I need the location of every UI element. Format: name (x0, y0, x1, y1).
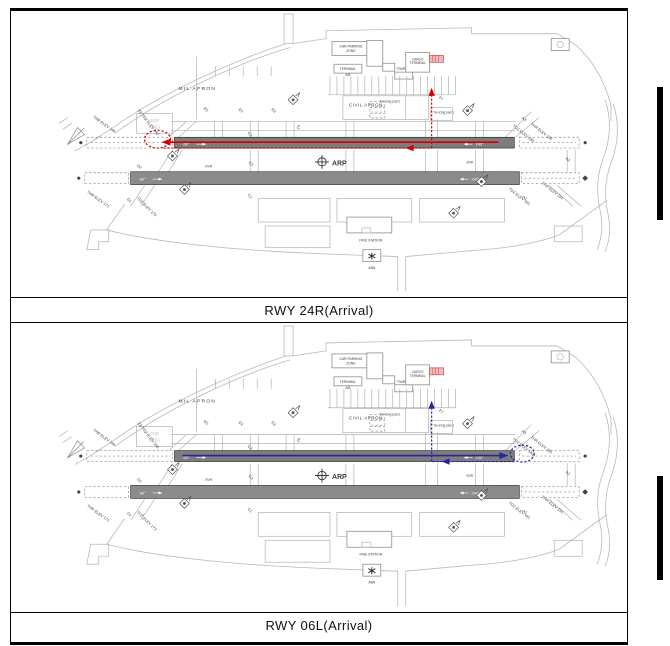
arrival-route-24r (145, 88, 499, 151)
arp-label: ARP (332, 160, 347, 167)
svg-text:ZONE: ZONE (346, 361, 356, 365)
label-deicing-pad-2: De-icing pad 2 (380, 413, 401, 417)
label-c2: C2 (248, 474, 255, 481)
route-arrow-up-icon (428, 401, 434, 409)
label-c2: C2 (248, 161, 254, 167)
label-deicing-pad-1: De-icing pad 1 (434, 111, 455, 115)
label-fire-station: FIRE STATION (359, 553, 382, 557)
label-terminal-ab: A/B (345, 73, 350, 77)
label-tdz-elev-173: TDZ ELEV 173 (136, 510, 158, 532)
label-e3: E3 (270, 108, 276, 114)
north-arrow-icon (64, 125, 87, 148)
label-e4: E4 (238, 420, 245, 427)
label-thr-elev-146: THR ELEV 146 (92, 427, 116, 447)
thumb-tab-top (657, 87, 663, 220)
fire-station-building (347, 217, 392, 233)
label-c1: C1 (247, 193, 253, 199)
terminal-buildings (137, 351, 570, 576)
label-deicing-pad-1: De-icing pad 1 (434, 424, 455, 428)
label-e4: E4 (238, 108, 245, 115)
label-thr-elev-171: THR ELEV 171 (86, 503, 110, 523)
panel-caption-rwy-06l: RWY 06L(Arrival) (11, 612, 627, 638)
svg-text:TERMINAL: TERMINAL (410, 61, 426, 65)
label-e7: E7 (438, 408, 444, 414)
label-thr-elev-191: THR ELEV 191 (541, 494, 565, 514)
label-fire-station: FIRE STATION (359, 238, 382, 242)
panel-caption-rwy-24r: RWY 24R(Arrival) (11, 297, 627, 322)
label-terminal: TERMINAL (340, 380, 356, 384)
label-abn: ABN (368, 581, 376, 585)
label-e7: E7 (438, 96, 444, 102)
windsock-icon (288, 406, 299, 418)
label-mil-apron: MIL APRON (178, 86, 216, 92)
airport-diagram-svg: 60° 240° 60° 240° ARP MIL APRON CAR PARK… (11, 11, 627, 297)
windsock-icon (463, 417, 474, 429)
arp-symbol: ARP (315, 469, 347, 483)
chart-page: 60° 240° 60° 240° ARP MIL APRON CAR PARK… (0, 0, 670, 646)
label-e5: E5 (203, 419, 210, 426)
arp-symbol: ARP (315, 155, 347, 169)
label-taxiway-e: E (297, 438, 301, 444)
airport-diagram-rwy-06l: 60° 240° 60° 240° ARP MIL APRON CAR PARK… (11, 323, 627, 612)
panel-rwy-24r-arrival: 60° 240° 60° 240° ARP MIL APRON CAR PARK… (11, 11, 627, 322)
windsock-icon (449, 520, 460, 532)
label-rvr-east: RVR (467, 474, 474, 478)
north-arrow-icon (64, 438, 87, 461)
airport-diagram-rwy-24r: 60° 240° 60° 240° ARP MIL APRON CAR PARK… (11, 11, 627, 297)
label-a2: A2 (565, 157, 571, 163)
tower-building (383, 63, 395, 71)
tower-building (383, 376, 395, 384)
windsock-icon (288, 93, 299, 105)
terminal-buildings (137, 39, 570, 262)
label-d1: D1 (126, 511, 133, 518)
label-d2: D2 (136, 164, 142, 170)
label-tdz-elev-173: TDZ ELEV 173 (136, 196, 157, 217)
label-thr-elev-191: THR ELEV 191 (541, 181, 564, 200)
label-car-parking: CAR PARKING (339, 357, 362, 361)
panel-rwy-06l-arrival: 60° 240° 60° 240° ARP MIL APRON CAR PARK… (11, 322, 627, 638)
label-rvr-west: RVR (205, 478, 212, 482)
label-car-parking: CAR PARKING (339, 45, 362, 49)
svg-text:ZONE: ZONE (346, 49, 356, 53)
windsock-icon (168, 463, 179, 475)
fire-station-building (347, 531, 392, 547)
label-e5: E5 (203, 107, 209, 113)
label-twr: TWR (397, 67, 406, 71)
label-taxiway-e: E (297, 124, 301, 130)
label-thr-elev-146: THR ELEV 146 (92, 115, 116, 134)
label-rvr-west: RVR (205, 164, 212, 168)
label-e3: E3 (270, 420, 277, 427)
runway-06r-24l (131, 172, 520, 185)
runways: 60° 240° 60° 240° (131, 451, 520, 499)
runway-06r-24l (131, 485, 520, 498)
label-rvr-east: RVR (467, 160, 474, 164)
label-tdz-elev-183: TDZ ELEV 183 (512, 124, 535, 143)
label-twr: TWR (397, 379, 406, 384)
label-thr-elev-171: THR ELEV 171 (86, 190, 110, 209)
map-labels: MIL APRON CAR PARKING ZONE TERMINAL A/B … (86, 357, 571, 585)
chart-sheet: 60° 240° 60° 240° ARP MIL APRON CAR PARK… (10, 8, 628, 645)
arp-label: ARP (332, 474, 347, 481)
label-c3: C3 (247, 131, 253, 137)
label-d2: D2 (136, 477, 143, 484)
route-arrow-up-icon (428, 88, 434, 96)
windsock-icon (449, 206, 460, 218)
map-labels: MIL APRON CAR PARKING ZONE TERMINAL A/B … (86, 45, 571, 270)
label-d1: D1 (126, 197, 132, 203)
svg-text:TERMINAL: TERMINAL (410, 374, 426, 378)
label-abn: ABN (368, 266, 376, 270)
rwy2-west-heading: 60° (140, 490, 146, 495)
rwy2-west-heading: 60° (140, 177, 146, 182)
label-terminal-ab: A/B (345, 386, 350, 390)
label-civil-apron: CIVIL APRON (349, 416, 383, 421)
windsock-icon (168, 149, 179, 161)
windsock-icon (463, 104, 474, 116)
thumb-tab-bottom (657, 476, 663, 580)
route-arrow-left-icon (162, 139, 171, 146)
label-deicing-pad-2: De-icing pad 2 (380, 100, 401, 104)
airport-diagram-svg: 60° 240° 60° 240° ARP MIL APRON CAR PARK… (11, 323, 627, 612)
label-a2: A2 (565, 469, 572, 476)
runways: 60° 240° 60° 240° (131, 137, 520, 184)
label-civil-apron: CIVIL APRON (349, 103, 383, 108)
label-terminal: TERMINAL (340, 67, 356, 71)
label-c3: C3 (247, 444, 254, 451)
label-mil-apron: MIL APRON (178, 399, 216, 405)
label-c1: C1 (247, 507, 254, 514)
